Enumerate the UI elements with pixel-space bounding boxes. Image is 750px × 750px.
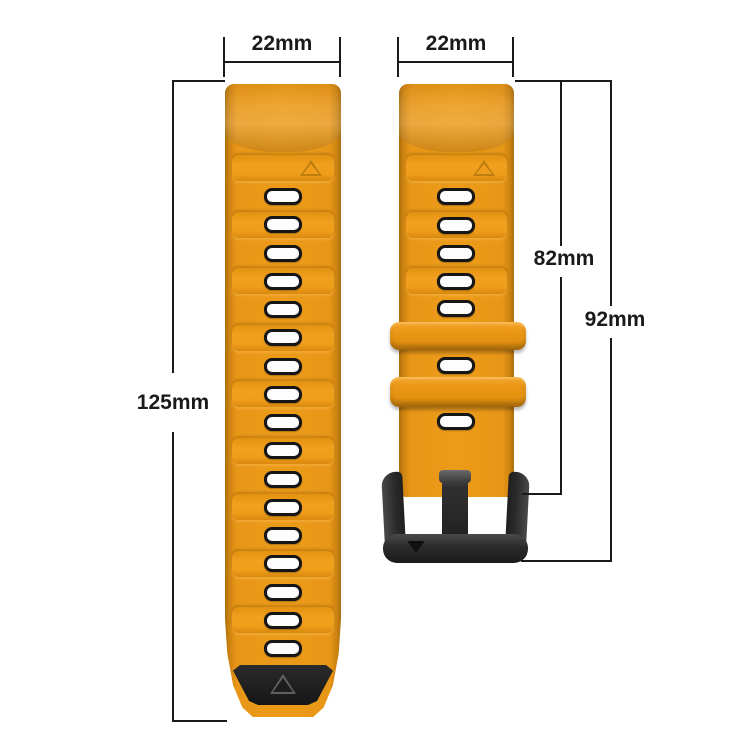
strap-keeper-1 (390, 322, 526, 350)
dim-line-strap82-upper (560, 80, 562, 246)
strap-hole (264, 188, 302, 205)
left-strap (225, 84, 341, 717)
strap-hole (264, 584, 302, 601)
strap-hole (264, 245, 302, 262)
dim-tick (172, 80, 225, 82)
dim-label-left-width: 22mm (232, 33, 332, 54)
dim-line-strap82-lower (560, 277, 562, 495)
strap-hole (437, 357, 475, 374)
dim-tick (512, 37, 514, 77)
tip-triangle-icon (270, 674, 296, 694)
dim-line-total92-lower (610, 338, 612, 562)
dim-tick (397, 37, 399, 77)
strap-hole (437, 245, 475, 262)
dim-tick (339, 37, 341, 77)
strap-hole (264, 273, 302, 290)
strap-segment (232, 155, 334, 181)
strap-hole (264, 414, 302, 431)
strap-hole (264, 358, 302, 375)
strap-hole (437, 413, 475, 430)
dim-tick (223, 37, 225, 77)
strap-hole (264, 612, 302, 629)
dim-label-total-length-92: 92mm (565, 309, 665, 330)
strap-segment (406, 155, 507, 181)
buckle (383, 470, 528, 563)
dim-line-total92-upper (610, 80, 612, 306)
strap-hole (264, 442, 302, 459)
strap-hole (437, 217, 475, 234)
strap-hole (264, 527, 302, 544)
buckle-tongue-cap (439, 470, 471, 483)
strap-hole (264, 471, 302, 488)
dim-tick (522, 493, 562, 495)
dim-line-right-width (398, 61, 514, 63)
strap-hole (264, 329, 302, 346)
strap-hole (264, 301, 302, 318)
dim-line-left-length-lower (172, 432, 174, 722)
dim-line-left-width (224, 61, 341, 63)
product-diagram: 22mm 22mm 125mm 82mm 92mm (0, 0, 750, 750)
strap-hole (264, 555, 302, 572)
right-strap (399, 84, 514, 497)
strap-hole (437, 300, 475, 317)
dim-tick (521, 560, 612, 562)
size-triangle-marker-icon (473, 160, 495, 176)
strap-hole (437, 273, 475, 290)
size-triangle-marker-icon (300, 160, 322, 176)
buckle-arrow-icon (407, 541, 425, 553)
buckle-bottom-bar (383, 534, 528, 563)
left-strap-lug-shading (225, 84, 341, 152)
dim-label-strap-length-82: 82mm (514, 248, 614, 269)
strap-hole (264, 386, 302, 403)
right-strap-lug-shading (399, 84, 514, 152)
dim-line-top-connector (515, 80, 612, 82)
dim-line-left-length-upper (172, 80, 174, 373)
dim-tick (172, 720, 227, 722)
dim-label-right-width: 22mm (406, 33, 506, 54)
strap-hole (264, 216, 302, 233)
dim-label-left-length: 125mm (108, 392, 238, 413)
strap-keeper-2 (390, 377, 526, 407)
strap-hole (437, 188, 475, 205)
strap-hole (264, 499, 302, 516)
strap-hole (264, 640, 302, 657)
left-strap-tip (233, 665, 333, 705)
